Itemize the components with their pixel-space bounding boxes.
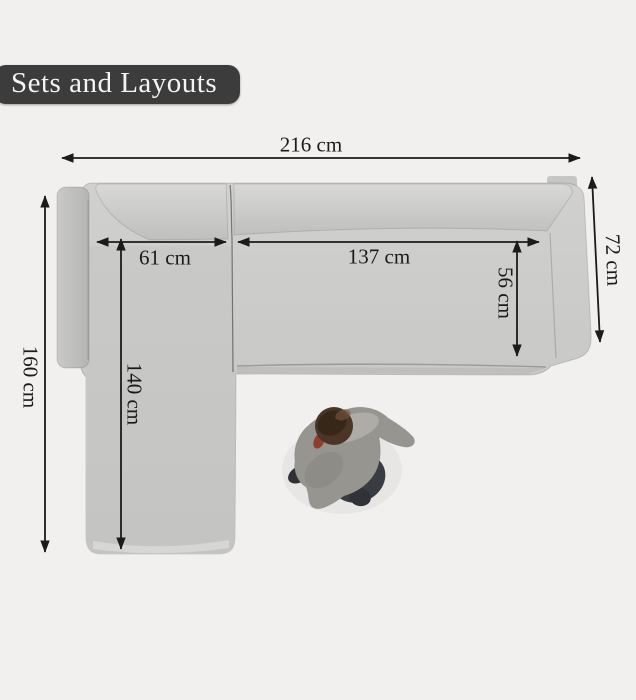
sofa-left-armrest — [57, 187, 89, 368]
dim-label-overall-width: 216 cm — [280, 135, 342, 156]
person-top-view-figure — [282, 406, 415, 514]
dim-label-chaise-length: 140 cm — [124, 363, 145, 425]
sofa-seat-front-shade — [237, 367, 546, 374]
dim-label-right-seat-width: 137 cm — [348, 247, 410, 268]
dim-label-right-depth: 72 cm — [602, 234, 625, 287]
sofa-back-cushion-right — [234, 184, 572, 235]
dim-label-left-seat-width: 61 cm — [139, 248, 191, 269]
product-dimension-image: Sets and Layouts 216 cm 160 cm 61 cm 137… — [0, 0, 636, 700]
dim-label-left-depth: 160 cm — [20, 346, 41, 408]
title-banner-label: Sets and Layouts — [11, 69, 217, 98]
title-banner: Sets and Layouts — [0, 65, 240, 104]
sofa-top-view-diagram — [0, 0, 636, 700]
dim-arrow-right-depth — [592, 177, 600, 342]
dim-label-seat-depth: 56 cm — [495, 267, 516, 319]
sofa-chaise — [86, 246, 235, 554]
